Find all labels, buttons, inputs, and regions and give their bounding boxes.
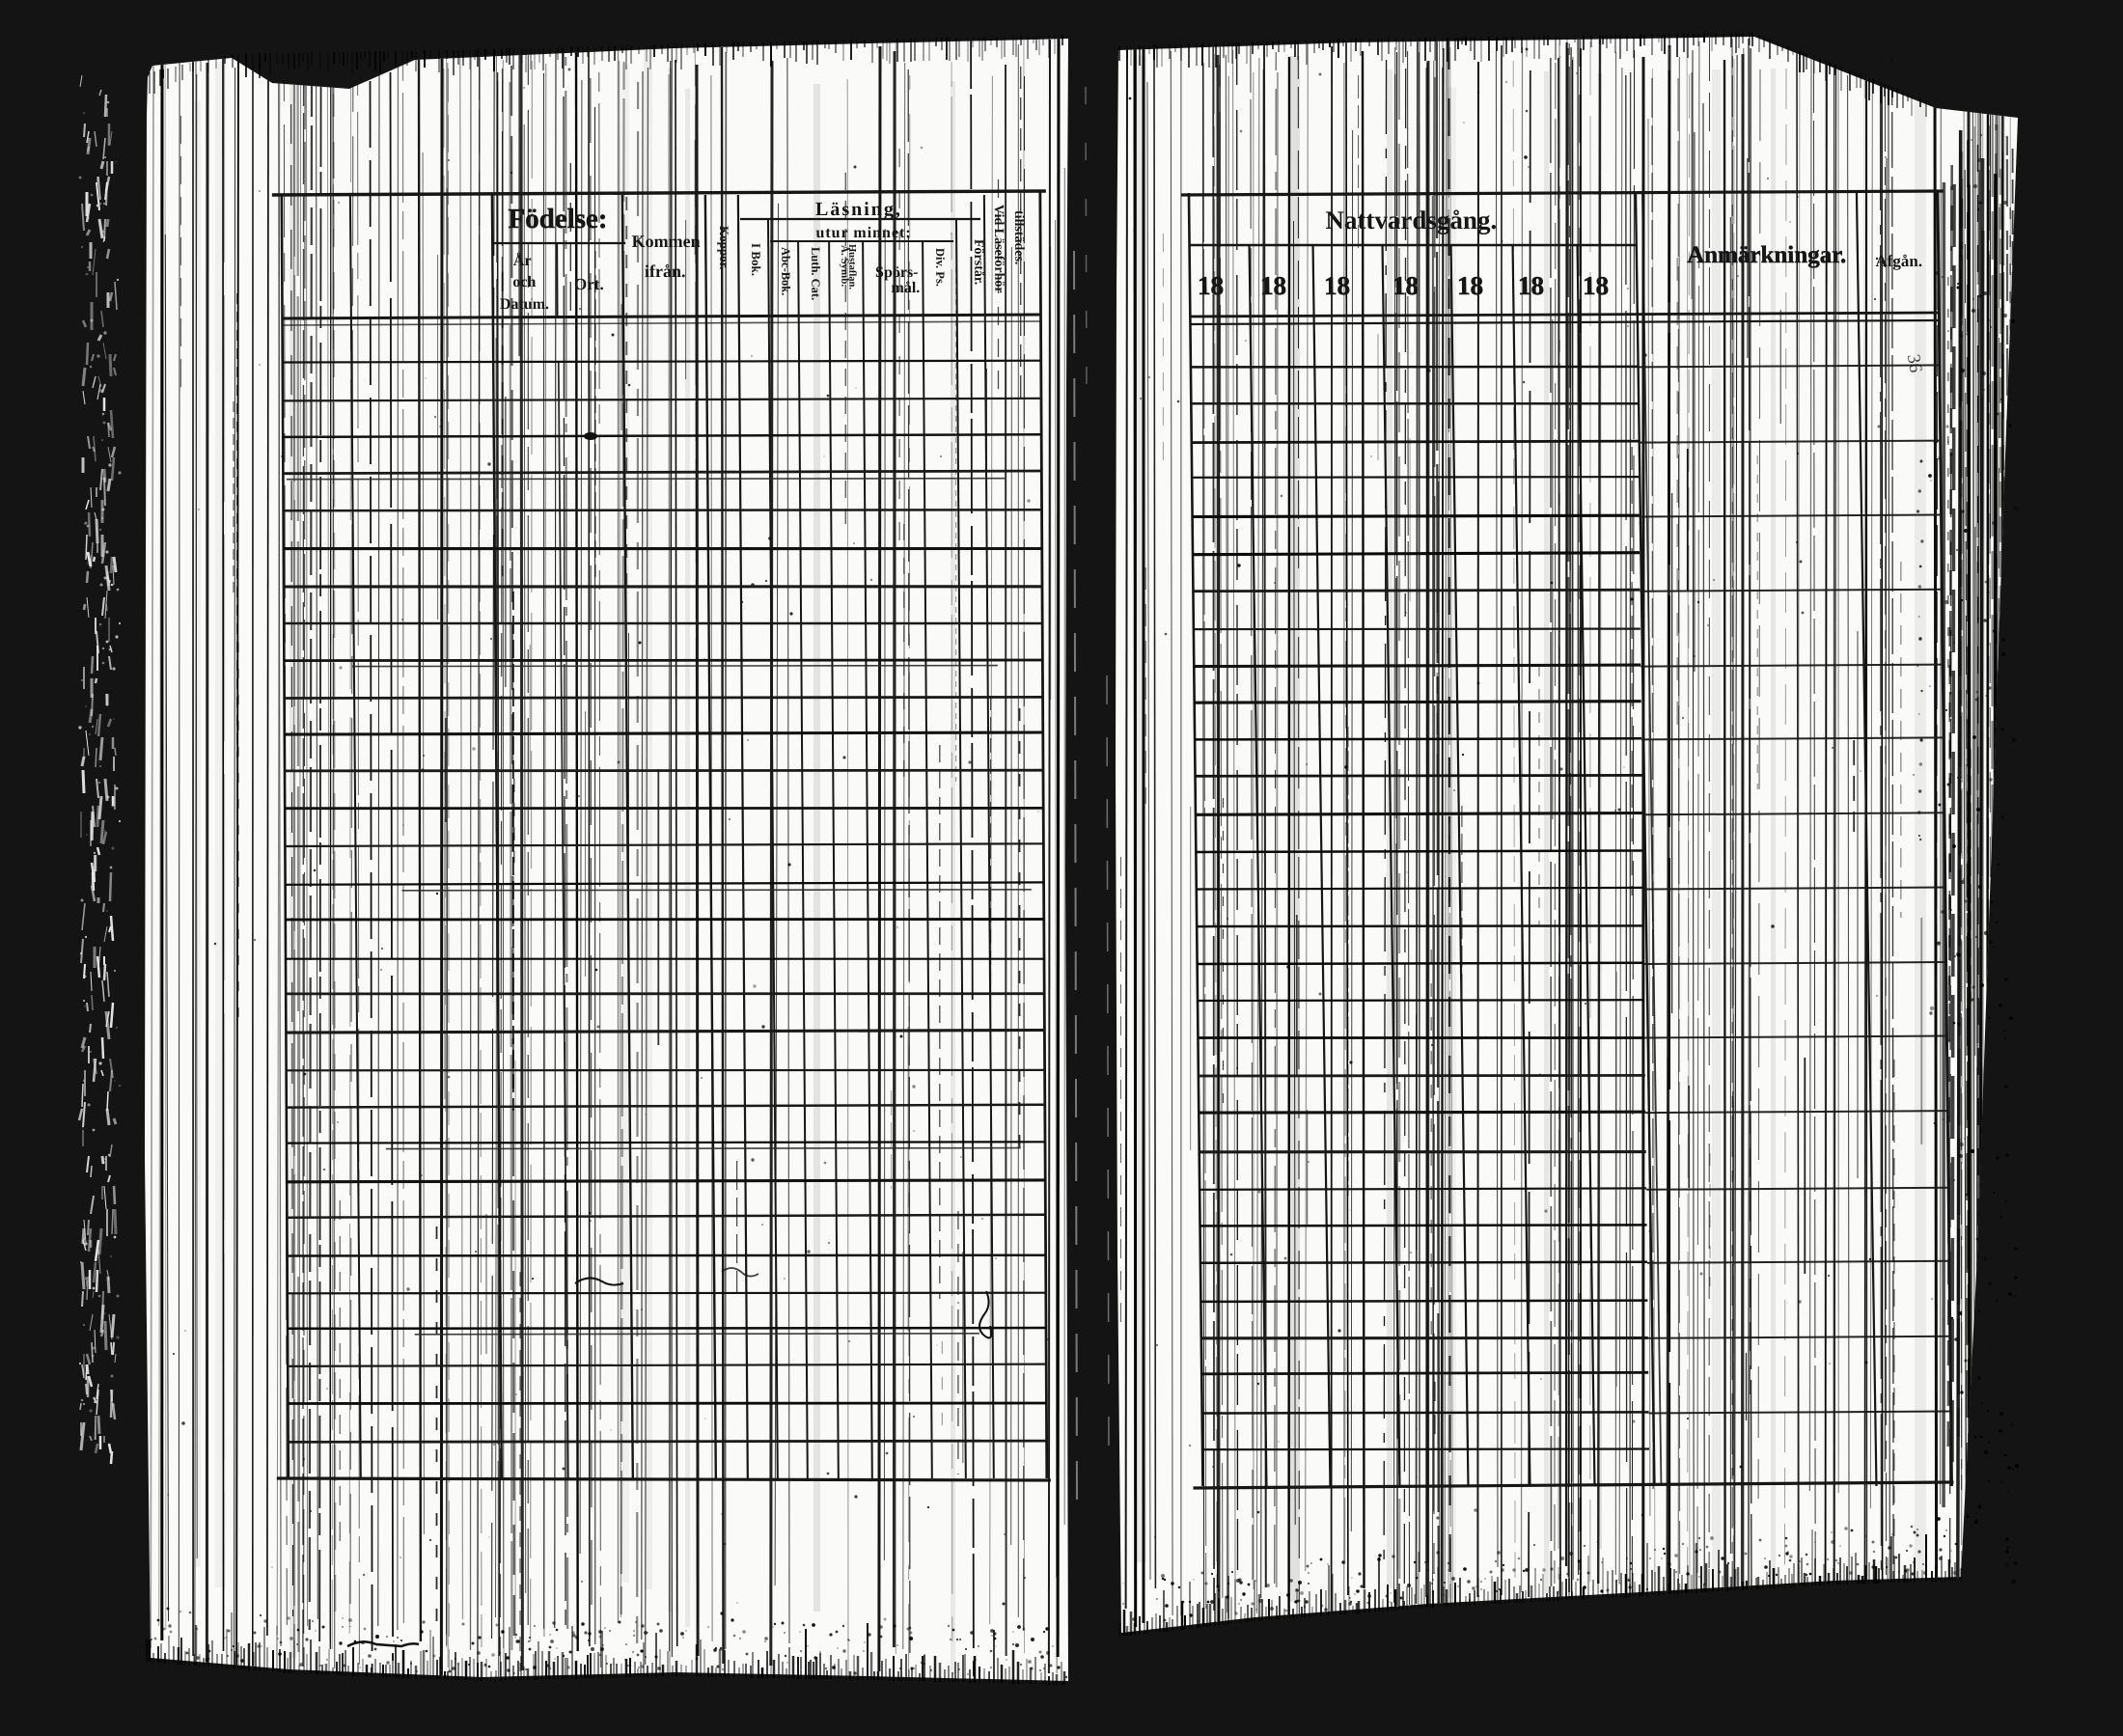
svg-text:Ort.: Ort. (574, 275, 604, 293)
svg-text:Hustaflan.: Hustaflan. (846, 244, 857, 289)
svg-text:Div. Ps.: Div. Ps. (933, 248, 947, 287)
svg-text:Spörs-: Spörs- (875, 264, 919, 281)
svg-text:utur minnet:: utur minnet: (815, 225, 911, 241)
svg-text:Anmärkningar.: Anmärkningar. (1687, 242, 1846, 268)
svg-text:18: 18 (1457, 271, 1483, 300)
svg-text:ifrån.: ifrån. (645, 262, 686, 281)
svg-text:Läsning,: Läsning, (815, 199, 902, 220)
svg-text:mål.: mål. (891, 280, 920, 296)
svg-text:18: 18 (1324, 271, 1350, 300)
svg-text:18: 18 (1198, 271, 1224, 300)
svg-text:Luth. Cat.: Luth. Cat. (809, 247, 822, 300)
svg-text:18: 18 (1518, 271, 1544, 300)
svg-text:År: År (513, 252, 532, 269)
svg-text:I Bok.: I Bok. (749, 243, 763, 276)
svg-text:Förstår.: Förstår. (971, 239, 985, 285)
svg-text:18: 18 (1392, 271, 1419, 300)
svg-text:Koppor.: Koppor. (717, 226, 731, 269)
svg-text:18: 18 (1260, 271, 1286, 300)
svg-text:Abc-Bok.: Abc-Bok. (779, 247, 792, 295)
svg-text:Nattvardsgång.: Nattvardsgång. (1325, 206, 1497, 234)
svg-text:Kommen: Kommen (632, 232, 701, 251)
svg-text:Vid Läseförhör: Vid Läseförhör (991, 205, 1006, 293)
svg-text:Afgån.: Afgån. (1875, 252, 1922, 270)
svg-text:36: 36 (1903, 353, 1926, 374)
svg-text:Datum.: Datum. (500, 296, 549, 313)
svg-text:och: och (512, 274, 536, 290)
svg-text:18: 18 (1583, 271, 1609, 300)
svg-text:Födelse:: Födelse: (508, 204, 607, 234)
svg-text:tillstädes.: tillstädes. (1011, 210, 1026, 264)
